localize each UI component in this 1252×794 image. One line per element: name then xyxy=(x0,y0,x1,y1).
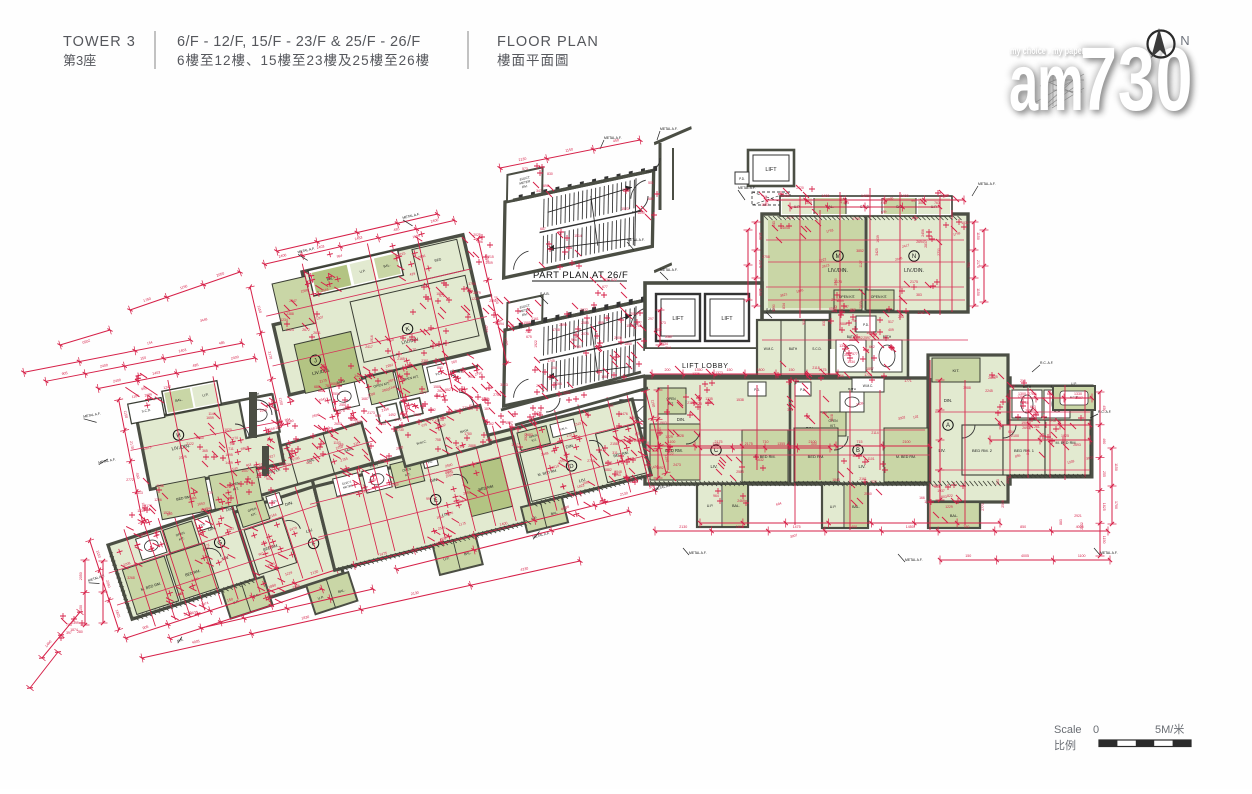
svg-text:997: 997 xyxy=(426,497,432,501)
svg-text:LIV./DIN.: LIV./DIN. xyxy=(904,268,924,274)
svg-text:1373: 1373 xyxy=(715,371,723,375)
svg-text:1523: 1523 xyxy=(621,207,629,211)
svg-text:677: 677 xyxy=(602,285,608,289)
svg-text:METAL A.F.: METAL A.F. xyxy=(689,551,707,555)
svg-text:2122: 2122 xyxy=(186,442,194,446)
svg-text:1659: 1659 xyxy=(206,416,214,420)
svg-text:N: N xyxy=(1180,33,1189,48)
svg-text:1100: 1100 xyxy=(668,440,676,444)
svg-text:1825: 1825 xyxy=(1102,503,1106,511)
svg-text:3988: 3988 xyxy=(963,386,971,390)
svg-text:1150: 1150 xyxy=(976,288,980,296)
svg-text:2755: 2755 xyxy=(587,459,595,463)
svg-text:429: 429 xyxy=(536,411,542,415)
svg-text:2245: 2245 xyxy=(985,389,993,393)
svg-text:比例: 比例 xyxy=(1054,738,1076,752)
svg-text:1905: 1905 xyxy=(1021,421,1029,425)
svg-text:2772: 2772 xyxy=(426,418,434,422)
svg-text:750: 750 xyxy=(525,330,531,334)
svg-text:2125: 2125 xyxy=(385,369,393,373)
svg-text:2061: 2061 xyxy=(563,391,571,395)
svg-text:1429: 1429 xyxy=(225,461,233,465)
svg-text:997: 997 xyxy=(911,199,917,203)
svg-text:2025: 2025 xyxy=(473,233,481,237)
svg-text:830: 830 xyxy=(547,172,553,176)
svg-text:1450: 1450 xyxy=(906,525,914,529)
svg-text:1020: 1020 xyxy=(224,428,232,432)
svg-text:2770: 2770 xyxy=(981,503,985,511)
svg-text:S.C.D.: S.C.D. xyxy=(812,347,822,351)
svg-text:2175: 2175 xyxy=(910,280,918,284)
svg-text:6樓至12樓、15樓至23樓及25樓至26樓: 6樓至12樓、15樓至23樓及25樓至26樓 xyxy=(177,53,430,68)
svg-text:METAL A.F.: METAL A.F. xyxy=(905,558,923,562)
svg-text:3852: 3852 xyxy=(856,249,864,253)
svg-text:FLOOR PLAN: FLOOR PLAN xyxy=(497,34,599,50)
svg-text:517: 517 xyxy=(888,320,894,324)
svg-text:570: 570 xyxy=(407,338,413,342)
svg-text:TOWER 3: TOWER 3 xyxy=(63,34,136,50)
svg-text:2859: 2859 xyxy=(859,301,863,309)
svg-text:1874: 1874 xyxy=(70,628,78,632)
svg-text:948: 948 xyxy=(375,414,381,418)
svg-text:698: 698 xyxy=(543,184,549,188)
svg-text:2388: 2388 xyxy=(286,312,294,316)
svg-text:1897: 1897 xyxy=(866,367,874,371)
svg-text:1639: 1639 xyxy=(876,235,880,243)
svg-text:Scale: Scale xyxy=(1054,724,1082,736)
svg-text:6/F - 12/F, 15/F - 23/F & 25/F: 6/F - 12/F, 15/F - 23/F & 25/F - 26/F xyxy=(177,34,421,50)
svg-text:763: 763 xyxy=(934,201,940,205)
svg-text:318: 318 xyxy=(435,394,441,398)
svg-text:2032: 2032 xyxy=(580,308,588,312)
svg-text:1934: 1934 xyxy=(847,360,855,364)
svg-text:501: 501 xyxy=(648,181,654,185)
svg-text:2100: 2100 xyxy=(903,440,911,444)
svg-text:2473: 2473 xyxy=(673,463,681,467)
svg-text:1937: 1937 xyxy=(937,489,945,493)
svg-text:166: 166 xyxy=(919,496,925,500)
svg-text:R.C. A.F.: R.C. A.F. xyxy=(1040,361,1053,365)
svg-text:2417: 2417 xyxy=(365,345,373,349)
svg-text:996: 996 xyxy=(477,240,483,244)
svg-text:352: 352 xyxy=(850,308,856,312)
svg-text:1422: 1422 xyxy=(354,374,362,378)
svg-text:1127: 1127 xyxy=(859,260,863,267)
svg-text:822: 822 xyxy=(947,494,953,498)
svg-text:2560: 2560 xyxy=(864,492,872,496)
svg-text:1514: 1514 xyxy=(574,234,582,238)
svg-text:785: 785 xyxy=(454,409,460,413)
svg-text:622: 622 xyxy=(611,278,617,282)
svg-text:4005: 4005 xyxy=(1021,554,1029,558)
svg-text:150: 150 xyxy=(727,368,733,372)
svg-text:2705: 2705 xyxy=(573,345,581,349)
svg-text:1150: 1150 xyxy=(1102,536,1106,544)
svg-text:2504: 2504 xyxy=(332,392,340,396)
svg-text:807: 807 xyxy=(468,407,474,411)
svg-text:1404: 1404 xyxy=(780,226,788,230)
svg-text:705: 705 xyxy=(66,623,72,627)
svg-text:1150: 1150 xyxy=(758,288,762,296)
svg-text:704: 704 xyxy=(1009,384,1015,388)
svg-text:1400: 1400 xyxy=(901,194,909,198)
svg-text:2588: 2588 xyxy=(736,470,744,474)
svg-text:METAL A.F.: METAL A.F. xyxy=(738,186,756,190)
svg-text:1239: 1239 xyxy=(137,509,145,513)
svg-text:S.A.B.: S.A.B. xyxy=(540,292,550,296)
svg-text:1695: 1695 xyxy=(637,211,645,215)
svg-text:850: 850 xyxy=(1020,525,1026,529)
svg-text:1007: 1007 xyxy=(241,469,249,473)
svg-text:1771: 1771 xyxy=(904,379,912,383)
svg-text:1241: 1241 xyxy=(917,311,925,315)
svg-text:880: 880 xyxy=(437,366,443,370)
svg-text:215: 215 xyxy=(488,255,494,259)
svg-text:2100: 2100 xyxy=(1011,434,1019,438)
svg-text:1355: 1355 xyxy=(777,442,785,446)
svg-text:2768: 2768 xyxy=(1028,392,1036,396)
svg-text:2016: 2016 xyxy=(630,312,638,316)
svg-text:1916: 1916 xyxy=(370,335,374,343)
svg-text:2469: 2469 xyxy=(737,499,745,503)
svg-text:2694: 2694 xyxy=(916,240,924,244)
svg-text:1521: 1521 xyxy=(163,511,171,515)
svg-text:2921: 2921 xyxy=(1074,514,1082,518)
svg-text:356: 356 xyxy=(838,374,844,378)
svg-text:1831: 1831 xyxy=(961,221,969,225)
svg-text:BED RM. 2: BED RM. 2 xyxy=(972,448,993,453)
svg-text:1103: 1103 xyxy=(333,441,340,445)
svg-text:1695: 1695 xyxy=(225,453,233,457)
svg-text:365: 365 xyxy=(202,449,208,453)
svg-text:2130: 2130 xyxy=(679,525,687,529)
svg-text:1766: 1766 xyxy=(468,282,476,286)
svg-text:LIV.: LIV. xyxy=(858,464,865,469)
svg-text:1780: 1780 xyxy=(464,432,472,436)
svg-text:1757: 1757 xyxy=(1049,419,1057,423)
svg-text:2076: 2076 xyxy=(581,332,589,336)
svg-text:689: 689 xyxy=(648,197,654,201)
svg-text:W.M.C.: W.M.C. xyxy=(764,347,775,351)
svg-text:LIV.: LIV. xyxy=(710,464,717,469)
svg-text:2114: 2114 xyxy=(871,431,878,435)
svg-text:634: 634 xyxy=(1008,430,1014,434)
svg-text:3268: 3268 xyxy=(127,576,135,580)
svg-text:373: 373 xyxy=(660,321,666,325)
svg-text:2170: 2170 xyxy=(976,260,980,268)
svg-text:758: 758 xyxy=(435,438,441,442)
svg-text:1475: 1475 xyxy=(793,525,801,529)
svg-text:1909: 1909 xyxy=(485,261,493,265)
svg-text:BAL.: BAL. xyxy=(950,514,958,518)
svg-text:1719: 1719 xyxy=(864,373,872,377)
svg-text:DIN.: DIN. xyxy=(944,398,952,403)
svg-text:889: 889 xyxy=(598,321,604,325)
svg-text:363: 363 xyxy=(652,449,658,453)
svg-text:200: 200 xyxy=(665,368,671,372)
svg-text:1745: 1745 xyxy=(547,359,555,363)
svg-text:2816: 2816 xyxy=(849,338,857,342)
svg-text:715: 715 xyxy=(857,440,863,444)
svg-text:2651: 2651 xyxy=(343,407,351,411)
svg-text:2888: 2888 xyxy=(468,444,476,448)
svg-text:1687: 1687 xyxy=(361,397,369,401)
svg-text:221: 221 xyxy=(256,475,262,479)
svg-text:1748: 1748 xyxy=(552,328,560,332)
svg-text:2100: 2100 xyxy=(809,440,817,444)
svg-text:2672: 2672 xyxy=(302,328,310,332)
svg-text:2587: 2587 xyxy=(665,335,673,339)
svg-text:METAL A.F.: METAL A.F. xyxy=(1100,551,1118,555)
svg-text:1772: 1772 xyxy=(394,418,402,422)
svg-text:1788: 1788 xyxy=(634,324,642,328)
svg-text:714: 714 xyxy=(665,346,671,350)
svg-text:2730: 2730 xyxy=(396,428,404,432)
svg-text:2056: 2056 xyxy=(258,466,266,470)
svg-text:2165: 2165 xyxy=(397,357,405,361)
svg-text:1603: 1603 xyxy=(939,495,947,499)
svg-text:2899: 2899 xyxy=(559,323,567,327)
svg-text:U.P.: U.P. xyxy=(1071,382,1077,386)
svg-text:182: 182 xyxy=(275,426,281,430)
svg-text:2132: 2132 xyxy=(506,324,514,328)
svg-text:1335: 1335 xyxy=(705,397,713,401)
svg-text:187: 187 xyxy=(484,407,490,411)
svg-text:730: 730 xyxy=(1080,28,1193,129)
svg-text:2629: 2629 xyxy=(437,389,445,393)
svg-text:1483: 1483 xyxy=(861,194,869,198)
svg-text:1587: 1587 xyxy=(505,421,513,425)
svg-text:1101: 1101 xyxy=(867,457,874,461)
svg-text:LIFT: LIFT xyxy=(721,316,733,322)
svg-text:1400: 1400 xyxy=(821,194,829,198)
svg-text:2175: 2175 xyxy=(715,440,723,444)
svg-text:2024: 2024 xyxy=(286,328,294,332)
svg-text:2922: 2922 xyxy=(524,433,528,441)
svg-text:KIT.: KIT. xyxy=(830,424,836,428)
svg-text:964: 964 xyxy=(713,494,719,498)
svg-text:1334: 1334 xyxy=(839,196,843,204)
svg-text:903: 903 xyxy=(266,477,272,481)
svg-text:1122: 1122 xyxy=(666,452,673,456)
svg-text:1296: 1296 xyxy=(154,498,162,502)
svg-text:1144: 1144 xyxy=(208,412,215,416)
svg-text:1585: 1585 xyxy=(523,321,531,325)
svg-text:347: 347 xyxy=(536,189,542,193)
svg-text:1557: 1557 xyxy=(761,203,769,207)
svg-text:LIV./DIN.: LIV./DIN. xyxy=(828,268,848,274)
svg-text:LIFT: LIFT xyxy=(672,316,684,322)
svg-text:297: 297 xyxy=(648,317,654,321)
svg-text:2400: 2400 xyxy=(782,194,790,198)
svg-text:2118: 2118 xyxy=(812,366,819,370)
svg-text:364: 364 xyxy=(787,408,793,412)
svg-text:966: 966 xyxy=(571,338,577,342)
svg-text:906: 906 xyxy=(802,319,806,325)
svg-text:W.M.C.: W.M.C. xyxy=(863,384,874,388)
svg-text:METAL A.F.: METAL A.F. xyxy=(978,182,996,186)
svg-text:P.D.: P.D. xyxy=(739,177,745,181)
svg-text:1229: 1229 xyxy=(945,505,953,509)
svg-text:2399: 2399 xyxy=(71,621,79,625)
svg-text:675: 675 xyxy=(526,335,532,339)
svg-text:1150: 1150 xyxy=(758,232,762,240)
svg-text:2886: 2886 xyxy=(839,322,847,326)
svg-text:2532: 2532 xyxy=(1080,522,1084,530)
svg-text:BATH: BATH xyxy=(789,347,798,351)
svg-text:N: N xyxy=(912,254,916,260)
svg-text:2691: 2691 xyxy=(844,353,852,357)
svg-text:261: 261 xyxy=(1034,425,1040,429)
svg-text:710: 710 xyxy=(763,440,769,444)
svg-text:2631: 2631 xyxy=(313,331,321,335)
svg-text:881: 881 xyxy=(318,389,324,393)
svg-text:2690: 2690 xyxy=(1022,426,1030,430)
svg-text:1538: 1538 xyxy=(736,398,744,402)
svg-text:1377: 1377 xyxy=(419,391,427,395)
svg-text:1846: 1846 xyxy=(832,478,840,482)
svg-text:3290: 3290 xyxy=(772,304,776,312)
svg-text:BED RM. 1: BED RM. 1 xyxy=(1014,448,1035,453)
svg-text:2585: 2585 xyxy=(581,321,589,325)
svg-text:150: 150 xyxy=(789,368,795,372)
svg-text:687: 687 xyxy=(540,227,546,231)
svg-text:280: 280 xyxy=(77,630,83,634)
svg-text:METAL A.F.: METAL A.F. xyxy=(660,127,678,131)
svg-text:U.P.: U.P. xyxy=(707,504,714,508)
svg-text:2170: 2170 xyxy=(758,260,762,268)
svg-text:662: 662 xyxy=(869,345,875,349)
svg-text:5M/米: 5M/米 xyxy=(1155,723,1184,736)
svg-text:KIT.: KIT. xyxy=(953,368,960,373)
svg-text:1534: 1534 xyxy=(660,342,668,346)
svg-text:1632: 1632 xyxy=(756,458,764,462)
svg-text:LIFT LOBBY: LIFT LOBBY xyxy=(682,361,729,370)
svg-text:my choice . my paper: my choice . my paper xyxy=(1010,45,1085,57)
svg-text:1138: 1138 xyxy=(156,484,163,488)
svg-text:3425: 3425 xyxy=(875,248,879,256)
svg-text:OPEN KIT.: OPEN KIT. xyxy=(871,295,887,299)
svg-text:METAL A.F.: METAL A.F. xyxy=(660,268,678,272)
svg-text:1328: 1328 xyxy=(676,434,684,438)
svg-text:1229: 1229 xyxy=(665,435,673,439)
svg-text:METAL A.F.: METAL A.F. xyxy=(627,238,645,242)
svg-text:1850: 1850 xyxy=(624,342,632,346)
svg-text:1894: 1894 xyxy=(496,322,504,326)
svg-text:P.D.: P.D. xyxy=(863,323,869,327)
svg-text:841: 841 xyxy=(1026,449,1030,455)
svg-text:1508: 1508 xyxy=(830,414,834,422)
svg-text:2772: 2772 xyxy=(126,478,134,482)
svg-text:577: 577 xyxy=(852,352,858,356)
svg-text:1987: 1987 xyxy=(601,375,609,379)
svg-text:樓面平面圖: 樓面平面圖 xyxy=(497,53,570,68)
svg-text:C: C xyxy=(714,448,719,454)
svg-text:2050: 2050 xyxy=(79,572,83,580)
svg-text:U.P.: U.P. xyxy=(830,505,837,509)
svg-text:831: 831 xyxy=(822,320,826,326)
svg-text:1795: 1795 xyxy=(852,217,860,221)
svg-text:2942: 2942 xyxy=(831,298,839,302)
svg-text:883: 883 xyxy=(1059,519,1063,525)
svg-text:2597: 2597 xyxy=(863,336,871,340)
svg-text:2456: 2456 xyxy=(921,229,925,237)
svg-text:2161: 2161 xyxy=(531,317,539,321)
svg-text:2730: 2730 xyxy=(937,248,941,256)
svg-text:1882: 1882 xyxy=(604,468,612,472)
svg-text:0: 0 xyxy=(1093,724,1099,736)
svg-text:1100: 1100 xyxy=(1078,554,1086,558)
svg-text:780: 780 xyxy=(967,262,971,268)
svg-text:413: 413 xyxy=(306,461,312,465)
svg-text:1492: 1492 xyxy=(388,413,396,417)
svg-text:1150: 1150 xyxy=(976,232,980,240)
svg-text:711: 711 xyxy=(228,447,234,451)
svg-text:BATH: BATH xyxy=(848,387,856,391)
svg-text:2175: 2175 xyxy=(745,442,753,446)
svg-text:1686: 1686 xyxy=(330,382,338,386)
svg-text:972: 972 xyxy=(439,294,445,298)
svg-text:1326: 1326 xyxy=(692,372,700,376)
svg-text:552: 552 xyxy=(445,388,451,392)
svg-text:2506: 2506 xyxy=(1001,500,1005,508)
svg-text:573: 573 xyxy=(522,167,528,171)
svg-text:R.C. A.F.: R.C. A.F. xyxy=(1098,410,1111,414)
svg-text:215: 215 xyxy=(1020,379,1026,383)
svg-text:1229: 1229 xyxy=(471,297,479,301)
svg-text:2173: 2173 xyxy=(367,411,375,415)
svg-text:165: 165 xyxy=(831,309,837,313)
svg-text:2837: 2837 xyxy=(924,240,928,248)
svg-text:213: 213 xyxy=(996,479,1000,485)
svg-text:368: 368 xyxy=(629,416,635,420)
svg-text:2381: 2381 xyxy=(421,359,429,363)
svg-text:409: 409 xyxy=(888,328,894,332)
svg-text:A: A xyxy=(946,423,950,429)
svg-text:796: 796 xyxy=(851,319,857,323)
svg-text:543: 543 xyxy=(772,221,776,227)
svg-text:404: 404 xyxy=(551,366,557,370)
svg-text:2693: 2693 xyxy=(1073,443,1081,447)
svg-text:2600: 2600 xyxy=(334,422,342,426)
svg-text:255: 255 xyxy=(1102,471,1106,477)
svg-text:311: 311 xyxy=(612,451,618,455)
svg-text:495: 495 xyxy=(843,201,849,205)
svg-text:1700: 1700 xyxy=(1114,501,1118,509)
svg-text:1298: 1298 xyxy=(1017,395,1025,399)
svg-text:2591: 2591 xyxy=(489,299,497,303)
svg-text:1300: 1300 xyxy=(405,405,409,413)
svg-text:2161: 2161 xyxy=(859,477,867,481)
svg-text:1634: 1634 xyxy=(602,278,610,282)
svg-text:1717: 1717 xyxy=(511,443,519,447)
svg-text:3907: 3907 xyxy=(1075,396,1083,400)
svg-text:460: 460 xyxy=(1102,438,1106,444)
svg-text:2758: 2758 xyxy=(762,255,770,259)
svg-text:2023: 2023 xyxy=(283,463,291,467)
svg-text:BAL.: BAL. xyxy=(732,504,740,508)
svg-text:1363: 1363 xyxy=(413,413,421,417)
svg-text:第3座: 第3座 xyxy=(63,53,96,68)
svg-text:3940: 3940 xyxy=(834,278,838,286)
svg-text:1413: 1413 xyxy=(135,491,143,495)
svg-text:834: 834 xyxy=(782,303,786,309)
svg-text:1150: 1150 xyxy=(1114,463,1118,471)
svg-text:1800: 1800 xyxy=(757,368,765,372)
svg-text:2679: 2679 xyxy=(473,291,481,295)
svg-text:2922: 2922 xyxy=(1006,476,1010,484)
svg-text:2158: 2158 xyxy=(610,442,618,446)
